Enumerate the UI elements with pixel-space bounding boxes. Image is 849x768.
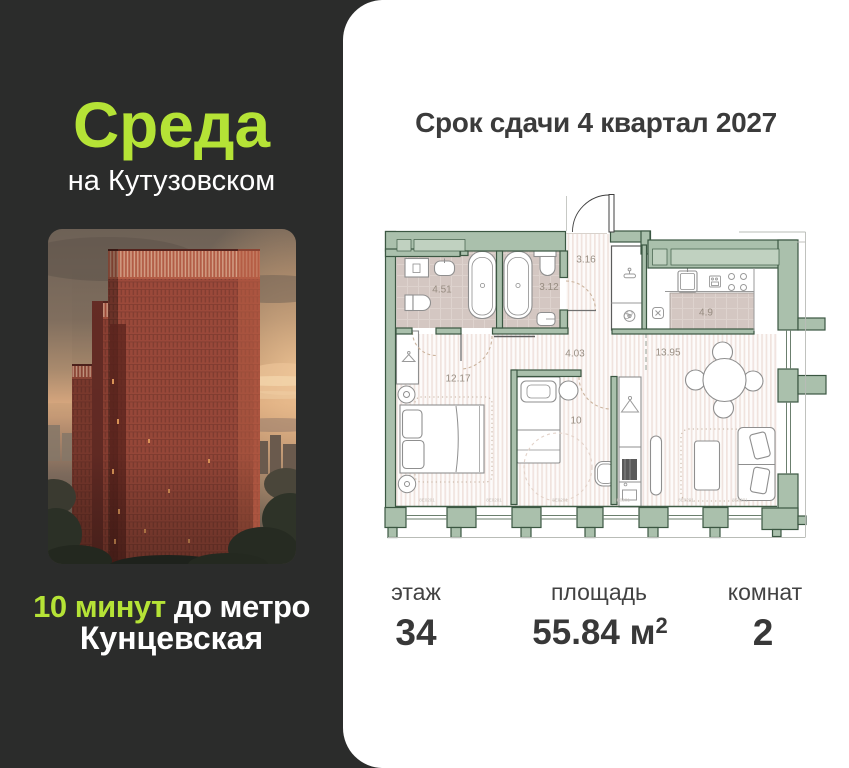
- svg-text:8Е0201: 8Е0201: [678, 498, 694, 503]
- svg-text:8Е0201: 8Е0201: [614, 498, 630, 503]
- svg-text:4.03: 4.03: [565, 349, 585, 360]
- svg-text:8Е0201: 8Е0201: [419, 498, 435, 503]
- svg-text:10: 10: [570, 416, 582, 427]
- svg-text:3.12: 3.12: [539, 282, 559, 293]
- svg-text:8Е0201: 8Е0201: [486, 498, 502, 503]
- svg-text:3.16: 3.16: [576, 255, 596, 266]
- svg-text:4.51: 4.51: [432, 285, 452, 296]
- svg-text:8Е0201: 8Е0201: [732, 498, 748, 503]
- svg-text:8Е0201: 8Е0201: [552, 498, 568, 503]
- svg-text:4.9: 4.9: [699, 308, 713, 319]
- svg-text:12.17: 12.17: [445, 374, 470, 385]
- svg-text:13.95: 13.95: [655, 348, 680, 359]
